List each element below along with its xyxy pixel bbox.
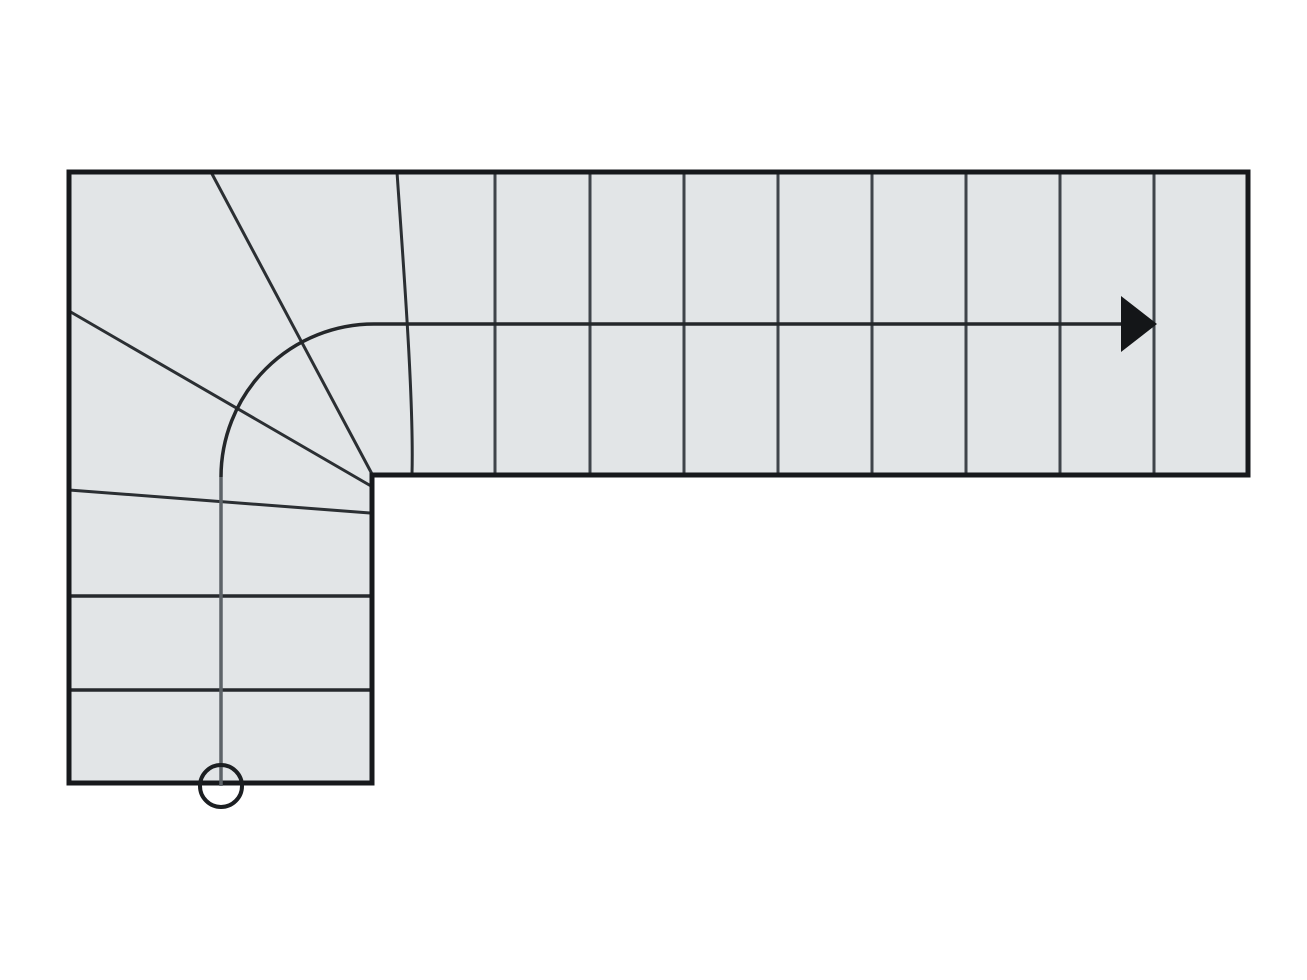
stair-plan-page	[0, 0, 1307, 980]
stair-plan-drawing	[0, 0, 1307, 980]
